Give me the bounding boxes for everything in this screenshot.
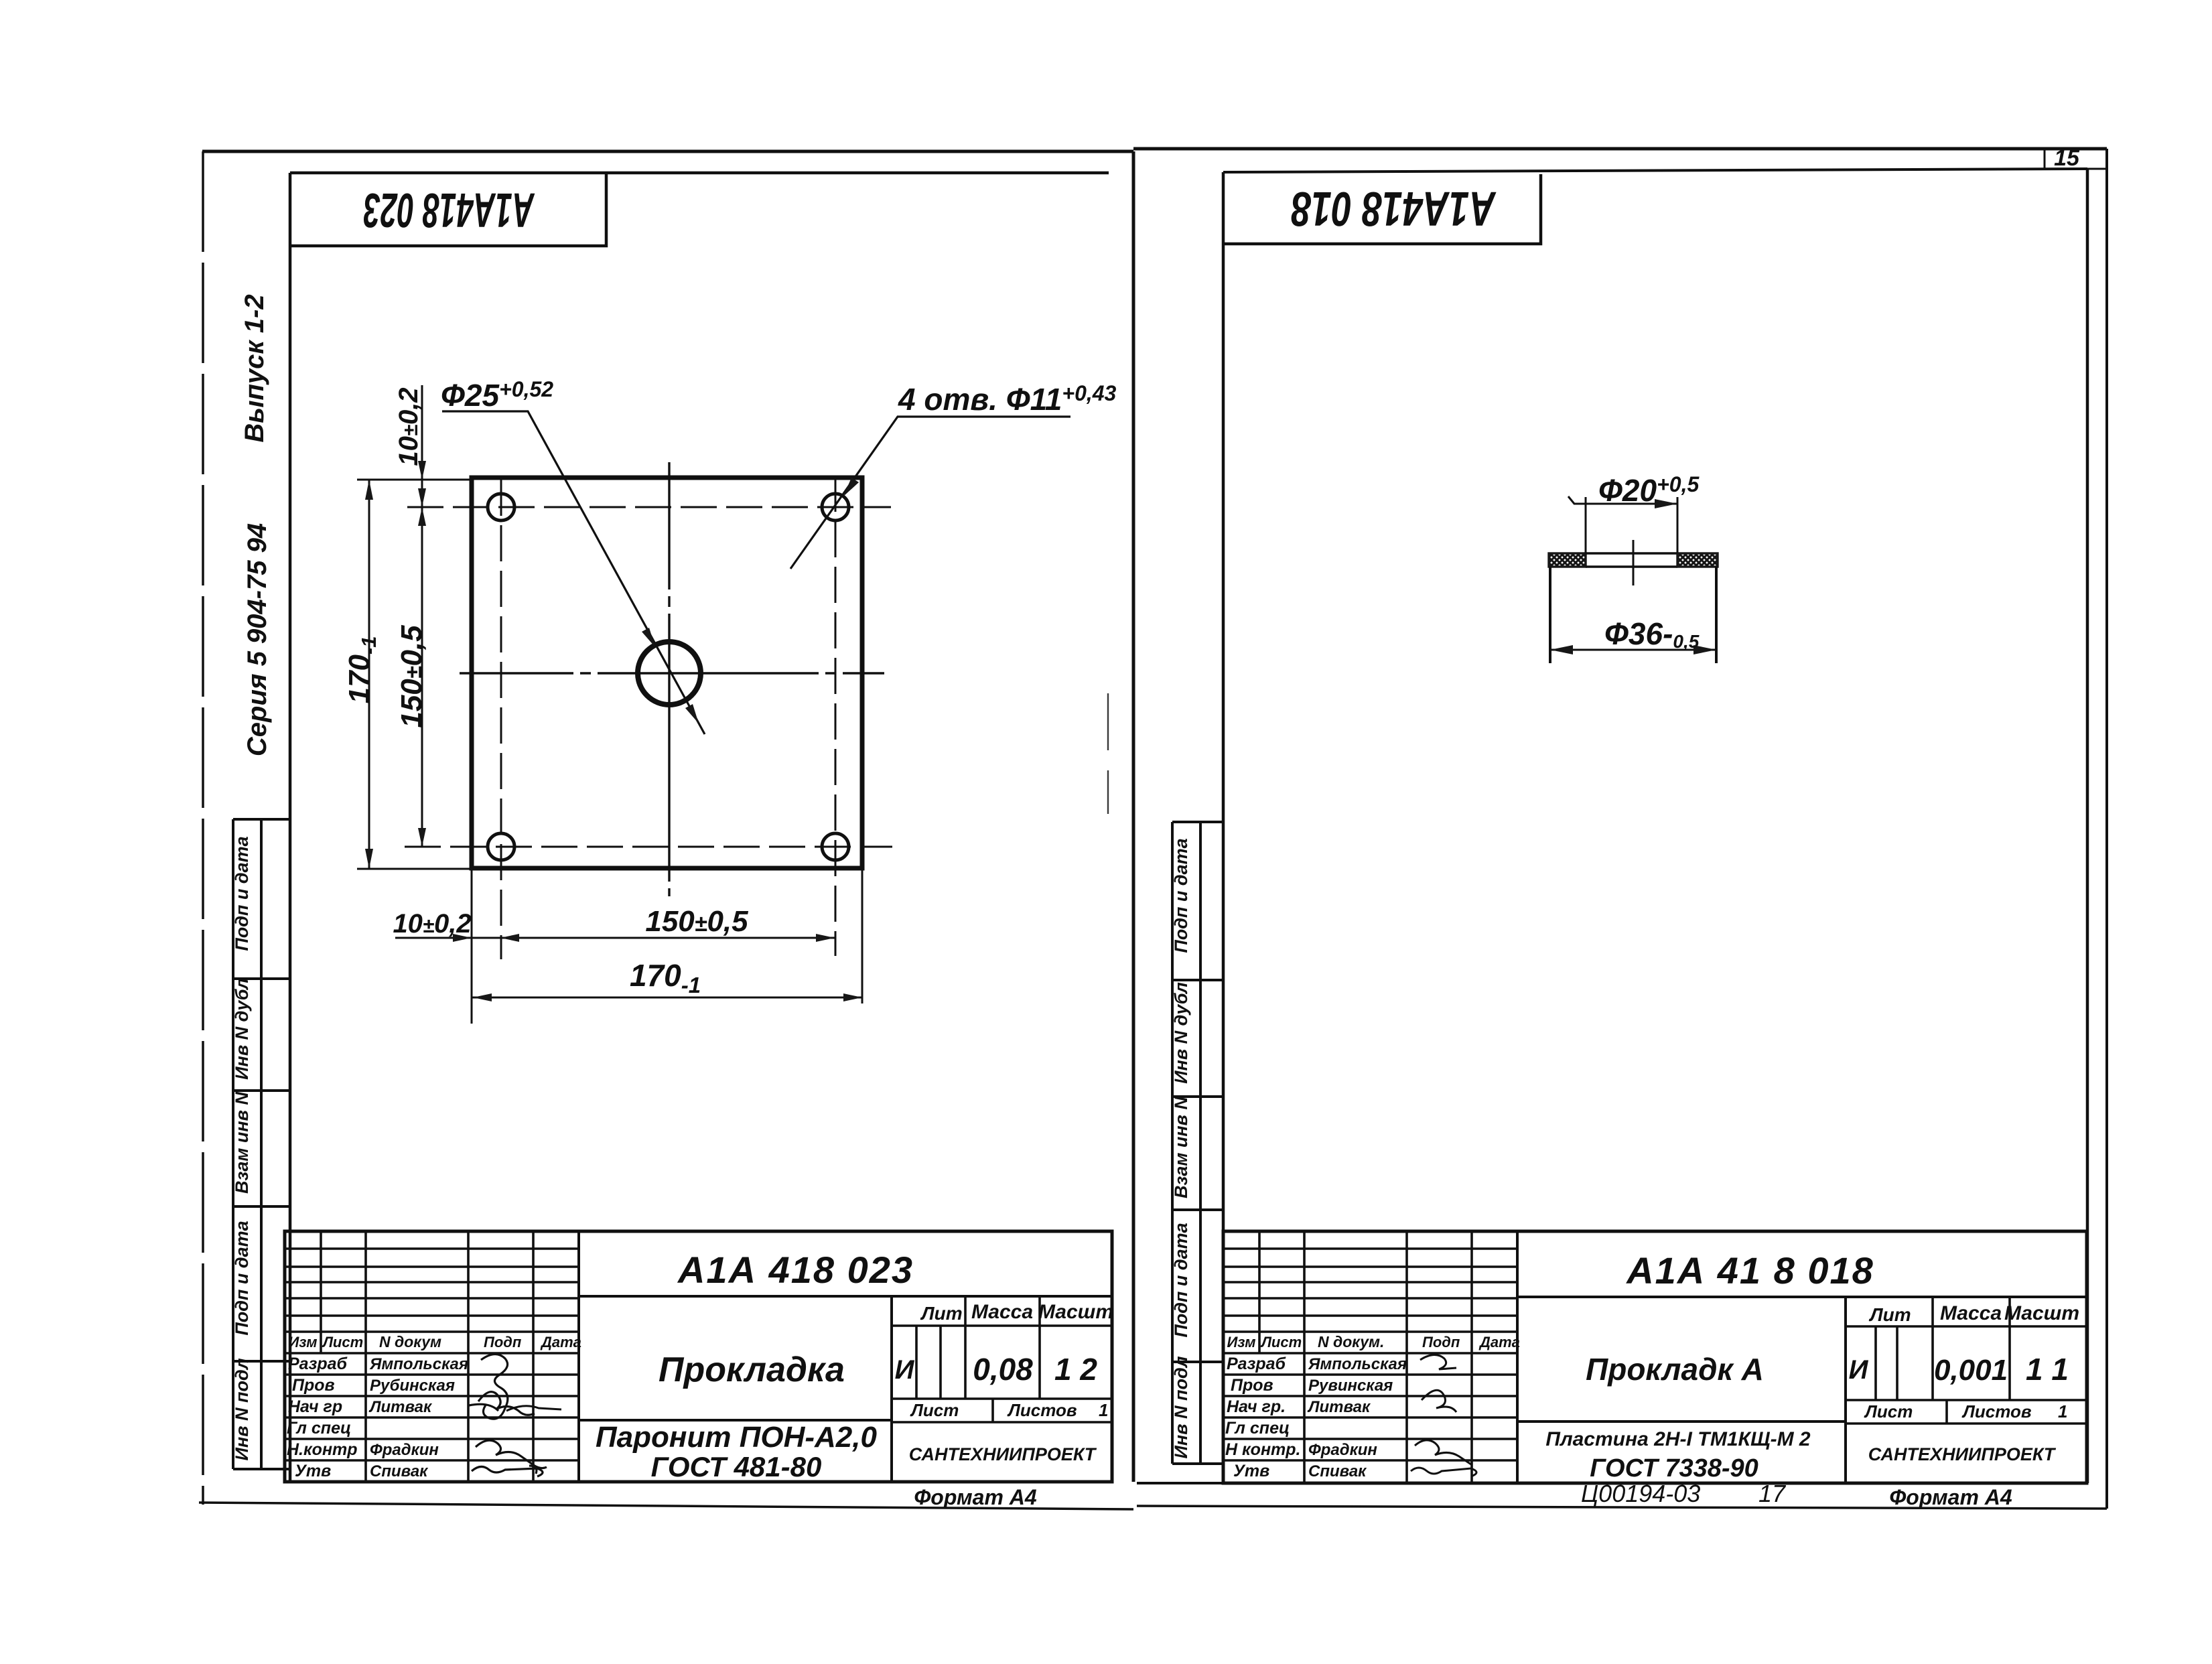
svg-text:Подп и дата: Подп и дата: [1171, 1223, 1191, 1337]
svg-text:0,08: 0,08: [973, 1352, 1033, 1387]
svg-text:Лит: Лит: [920, 1303, 962, 1324]
svg-text:А1А418 023: А1А418 023: [364, 183, 535, 236]
svg-text:Инв N дубл: Инв N дубл: [232, 978, 252, 1080]
svg-text:Рубинская: Рубинская: [370, 1377, 455, 1395]
svg-text:Утв: Утв: [295, 1462, 331, 1480]
svg-text:Н.контр: Н.контр: [287, 1440, 358, 1459]
svg-text:Утв: Утв: [1233, 1462, 1269, 1480]
svg-text:Паронит ПОН-А2,0: Паронит ПОН-А2,0: [596, 1421, 877, 1454]
svg-text:ГОСТ 7338-90: ГОСТ 7338-90: [1590, 1454, 1758, 1482]
svg-text:Прокладк А: Прокладк А: [1586, 1352, 1764, 1387]
svg-text:Нач гр.: Нач гр.: [1227, 1397, 1286, 1416]
svg-text:ГОСТ 481-80: ГОСТ 481-80: [651, 1451, 822, 1482]
svg-text:Подп: Подп: [1422, 1334, 1460, 1350]
svg-text:Подп и дата: Подп и дата: [232, 836, 252, 951]
svg-text:Прокладка: Прокладка: [659, 1350, 845, 1389]
svg-text:Пластина 2Н-I ТМ1КЩ-М 2: Пластина 2Н-I ТМ1КЩ-М 2: [1545, 1428, 1811, 1450]
svg-text:А1А 418 023: А1А 418 023: [677, 1249, 914, 1291]
svg-text:Ц00194-03: Ц00194-03: [1581, 1480, 1700, 1507]
svg-text:Инв N подл: Инв N подл: [232, 1358, 252, 1460]
svg-text:10±0,2: 10±0,2: [394, 387, 423, 466]
svg-text:Листов: Листов: [1961, 1401, 2032, 1422]
svg-text:Дата: Дата: [540, 1334, 581, 1350]
svg-text:Гл спец: Гл спец: [1225, 1419, 1290, 1438]
svg-text:Изм: Изм: [288, 1334, 317, 1350]
svg-text:Инв N дубл: Инв N дубл: [1171, 982, 1191, 1084]
svg-text:Масшт: Масшт: [2004, 1302, 2079, 1324]
svg-text:0,001: 0,001: [1934, 1354, 2008, 1387]
svg-text:Лит: Лит: [1868, 1304, 1911, 1325]
svg-text:Масшт: Масшт: [1038, 1301, 1113, 1323]
svg-text:И: И: [895, 1355, 915, 1385]
svg-text:1: 1: [2058, 1401, 2067, 1422]
svg-text:Подп и дата: Подп и дата: [1171, 838, 1191, 953]
svg-text:Нач гр: Нач гр: [288, 1397, 342, 1416]
svg-text:Взам инв N: Взам инв N: [1171, 1097, 1191, 1198]
svg-text:Фрадкин: Фрадкин: [1308, 1441, 1377, 1459]
svg-text:Дата: Дата: [1478, 1334, 1520, 1350]
svg-text:Лист: Лист: [322, 1334, 363, 1350]
svg-text:1 1: 1 1: [2026, 1352, 2069, 1387]
svg-text:Ямпольская: Ямпольская: [1308, 1355, 1407, 1373]
svg-text:Лист: Лист: [910, 1400, 959, 1420]
svg-text:Выпуск 1-2: Выпуск 1-2: [240, 294, 269, 442]
svg-text:САНТЕХНИИПРОЕКТ: САНТЕХНИИПРОЕКТ: [909, 1444, 1097, 1464]
svg-text:Литвак: Литвак: [1307, 1398, 1371, 1416]
svg-text:N докум.: N докум.: [1318, 1333, 1384, 1350]
svg-text:Ямпольская: Ямпольская: [369, 1355, 468, 1373]
svg-text:Инв N подл: Инв N подл: [1171, 1356, 1191, 1458]
svg-text:Гл спец: Гл спец: [287, 1419, 351, 1438]
svg-text:А1А 41 8 018: А1А 41 8 018: [1625, 1249, 1874, 1292]
svg-text:Лист: Лист: [1864, 1401, 1913, 1422]
svg-text:15: 15: [2054, 145, 2080, 171]
svg-text:САНТЕХНИИПРОЕКТ: САНТЕХНИИПРОЕКТ: [1868, 1444, 2057, 1464]
svg-text:Фрадкин: Фрадкин: [370, 1441, 439, 1459]
svg-text:Подп: Подп: [484, 1334, 522, 1350]
svg-text:Формат А4: Формат А4: [914, 1485, 1037, 1509]
svg-text:Формат А4: Формат А4: [1889, 1485, 2012, 1509]
svg-text:Пров: Пров: [1231, 1376, 1273, 1395]
svg-text:Литвак: Литвак: [368, 1398, 433, 1416]
svg-text:Масса: Масса: [1940, 1302, 2002, 1324]
svg-text:Лист: Лист: [1260, 1334, 1302, 1350]
svg-text:И: И: [1849, 1355, 1869, 1385]
svg-text:Масса: Масса: [971, 1301, 1033, 1323]
svg-text:Разраб: Разраб: [288, 1355, 348, 1373]
svg-text:Разраб: Разраб: [1227, 1355, 1287, 1373]
svg-text:Серия 5 904-75 94: Серия 5 904-75 94: [243, 523, 272, 756]
svg-text:А1А418 018: А1А418 018: [1292, 182, 1497, 235]
svg-text:1: 1: [1099, 1400, 1108, 1420]
svg-text:Пров: Пров: [292, 1376, 335, 1395]
svg-text:17: 17: [1758, 1480, 1787, 1507]
svg-text:Спивак: Спивак: [1308, 1462, 1367, 1480]
svg-text:Взам инв N: Взам инв N: [232, 1092, 252, 1194]
svg-text:Спивак: Спивак: [370, 1462, 429, 1480]
svg-text:N докум: N докум: [379, 1333, 441, 1350]
svg-text:1 2: 1 2: [1054, 1352, 1097, 1387]
svg-text:10±0,2: 10±0,2: [393, 909, 471, 939]
svg-text:Изм: Изм: [1227, 1334, 1255, 1350]
svg-text:Н контр.: Н контр.: [1225, 1440, 1301, 1459]
svg-text:Листов: Листов: [1007, 1400, 1077, 1420]
svg-text:Подп и дата: Подп и дата: [232, 1221, 252, 1335]
svg-text:Рувинская: Рувинская: [1308, 1377, 1393, 1395]
